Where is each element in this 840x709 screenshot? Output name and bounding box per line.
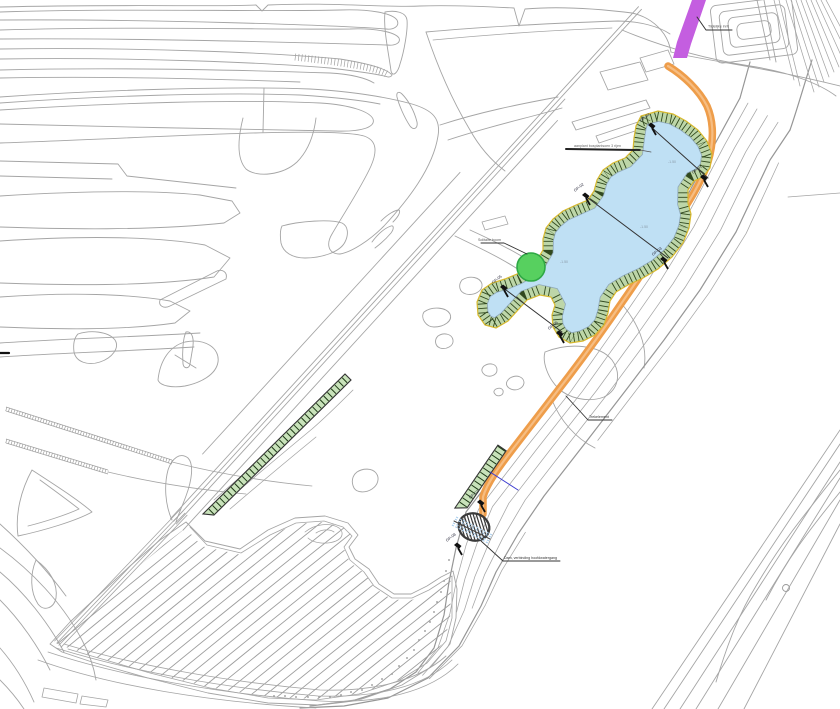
svg-text:Solitaire boom: Solitaire boom xyxy=(478,238,501,242)
svg-text:Tijdelijke inrit: Tijdelijke inrit xyxy=(708,25,729,29)
svg-text:-1.50: -1.50 xyxy=(640,225,648,229)
svg-text:-1.50: -1.50 xyxy=(668,160,676,164)
svg-text:aanplant bosplantsoen 3 rijen: aanplant bosplantsoen 3 rijen xyxy=(574,144,621,148)
svg-text:-1.50: -1.50 xyxy=(560,260,568,264)
svg-text:Dam, verbinding hoofdwatergang: Dam, verbinding hoofdwatergang xyxy=(504,556,557,560)
svg-text:Trekelement: Trekelement xyxy=(589,415,609,419)
